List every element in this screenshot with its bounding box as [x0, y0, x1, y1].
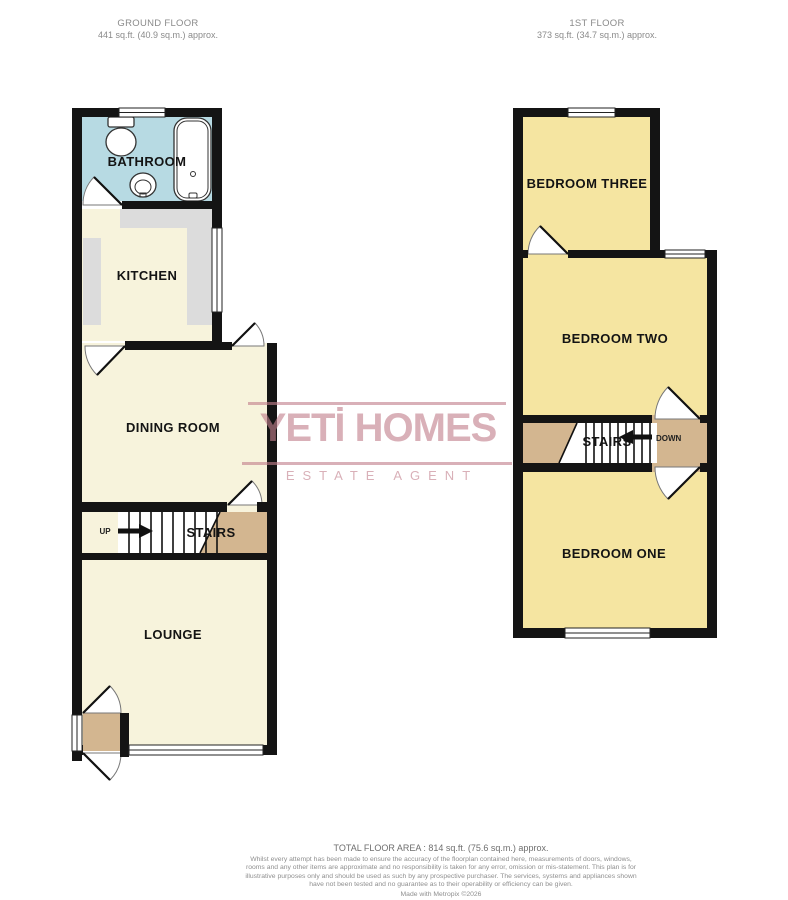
footer: TOTAL FLOOR AREA : 814 sq.ft. (75.6 sq.m… [241, 843, 641, 898]
ground-floor-title: GROUND FLOOR [58, 18, 258, 29]
floorplan-page: GROUND FLOOR 441 sq.ft. (40.9 sq.m.) app… [0, 0, 788, 900]
toilet [106, 117, 136, 156]
bathroom-label: BATHROOM [108, 154, 187, 169]
first-floor-title: 1ST FLOOR [497, 18, 697, 29]
bedroom-three-window [568, 108, 615, 117]
first-floor-header: 1ST FLOOR 373 sq.ft. (34.7 sq.m.) approx… [497, 18, 697, 40]
down-label: DOWN [656, 434, 682, 443]
first-floor-plan: BEDROOM THREE BEDROOM TWO STAIRS BEDROOM… [500, 100, 730, 650]
metropix-credit: Made with Metropix ©2026 [241, 891, 641, 898]
bedroom-one-label: BEDROOM ONE [562, 546, 666, 561]
kitchen-window [212, 228, 222, 312]
bedroom-two-window [665, 250, 705, 258]
disclaimer-text: Whilst every attempt has been made to en… [241, 856, 641, 890]
porch-window [72, 715, 82, 751]
up-label: UP [99, 527, 111, 536]
dining-room-label: DINING ROOM [126, 420, 220, 435]
entry-porch [83, 713, 120, 751]
sink [130, 173, 156, 197]
bedroom-three-label: BEDROOM THREE [527, 176, 648, 191]
bathroom-window [119, 108, 165, 117]
lounge-label: LOUNGE [144, 627, 202, 642]
ground-floor-plan: BATHROOM KITCHEN DINING ROOM STAIRS LOUN… [60, 100, 290, 790]
entry-outer-door [83, 753, 121, 780]
lounge-window [129, 745, 263, 755]
ground-floor-header: GROUND FLOOR 441 sq.ft. (40.9 sq.m.) app… [58, 18, 258, 40]
stairs-label-ground: STAIRS [186, 525, 235, 540]
bedroom-two-label: BEDROOM TWO [562, 331, 668, 346]
total-floor-area: TOTAL FLOOR AREA : 814 sq.ft. (75.6 sq.m… [241, 843, 641, 853]
kitchen-label: KITCHEN [117, 268, 178, 283]
ground-floor-area: 441 sq.ft. (40.9 sq.m.) approx. [58, 30, 258, 40]
dining-rear-door [232, 323, 264, 346]
bedroom-one-window [565, 628, 650, 638]
first-floor-area: 373 sq.ft. (34.7 sq.m.) approx. [497, 30, 697, 40]
